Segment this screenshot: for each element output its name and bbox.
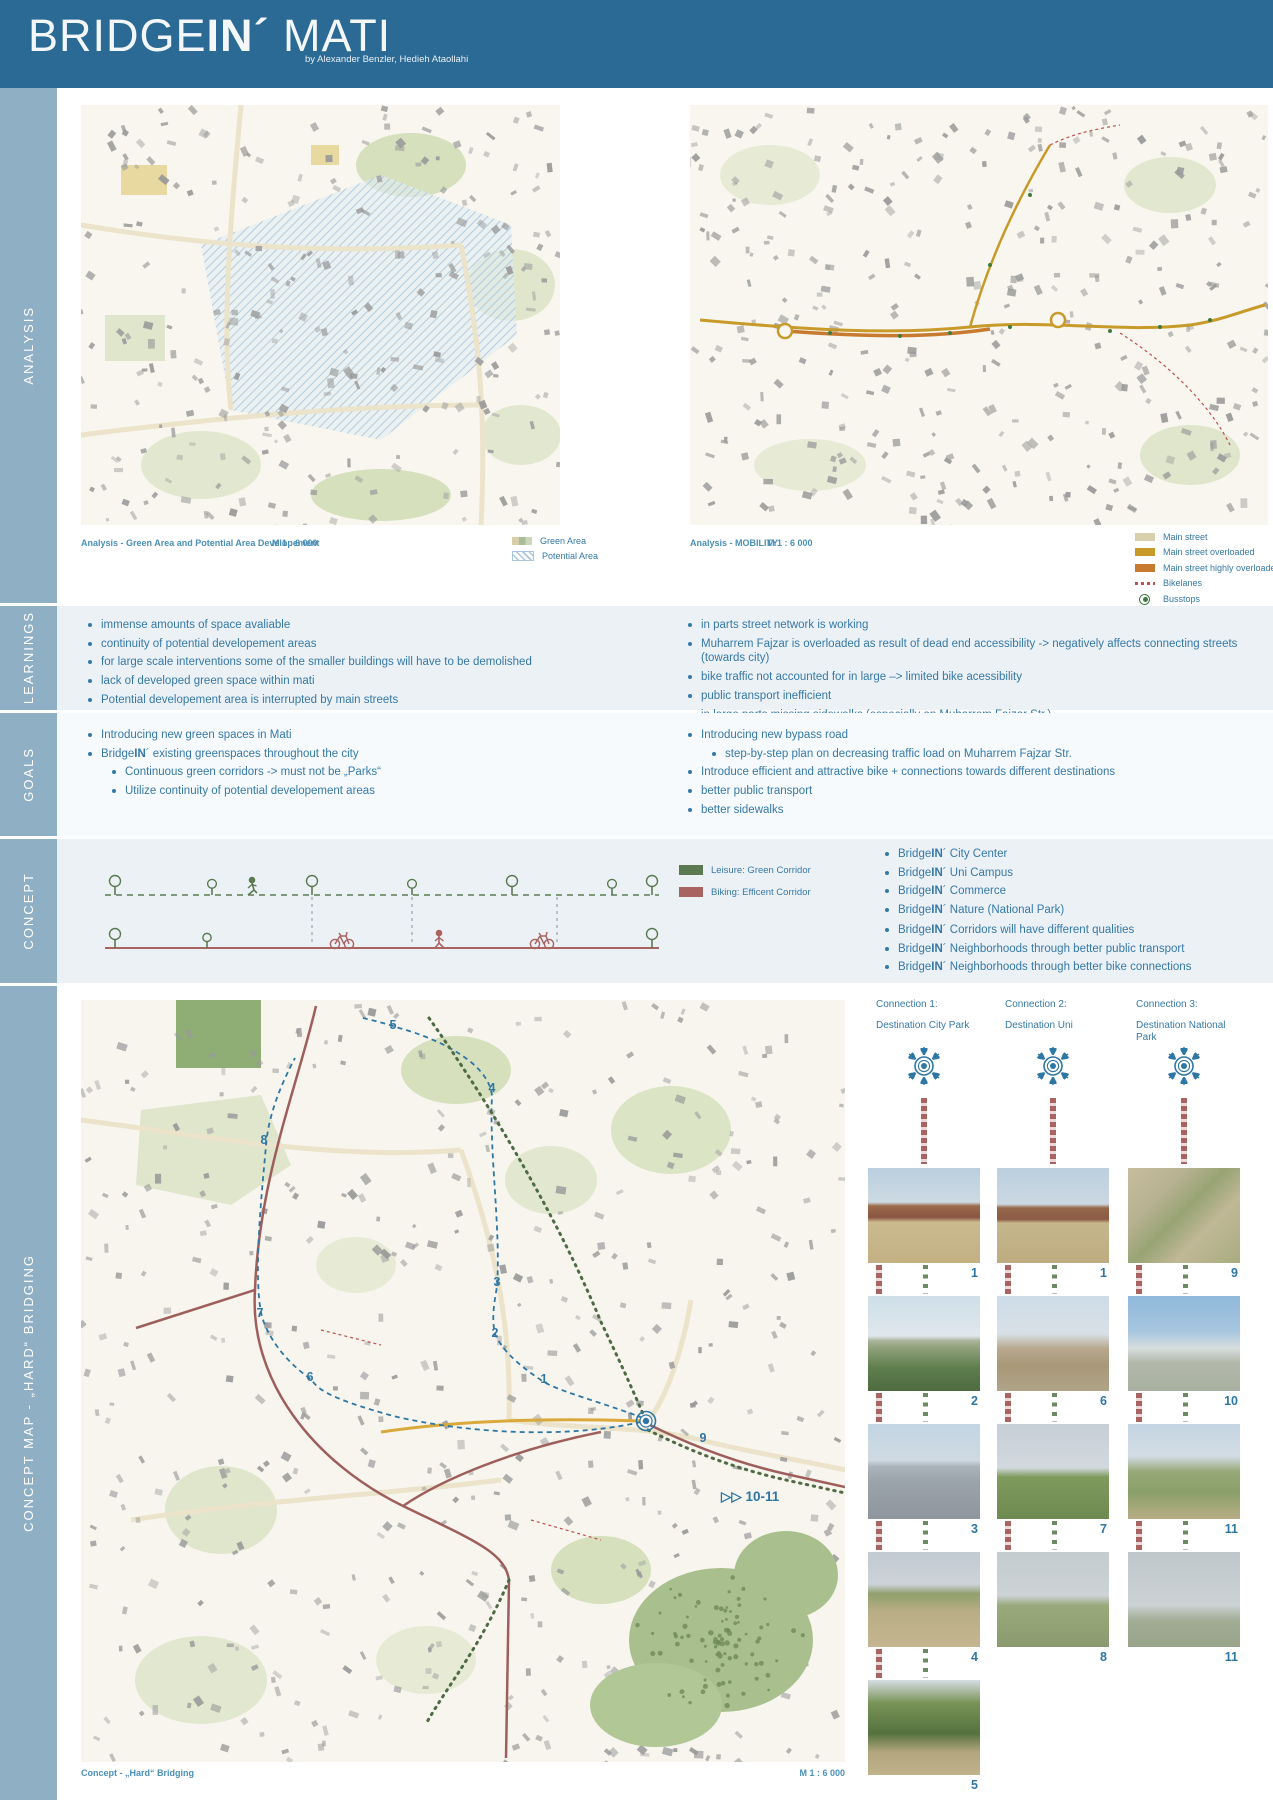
bullet-dot: [688, 623, 692, 627]
photo-number: 10: [1224, 1394, 1238, 1408]
photo-number: 11: [1225, 1650, 1238, 1664]
photo-cell: 10: [1128, 1296, 1240, 1424]
legend-item: Green Area: [512, 533, 598, 549]
bullet-text: BridgeIN´ Neighborhoods through better b…: [898, 960, 1191, 975]
bullet-dot: [112, 770, 116, 774]
photo-stack: 12345: [868, 1168, 980, 1800]
bullet-item: BridgeIN´ Nature (National Park): [885, 903, 1273, 918]
map-scale-concept: M 1 : 6 000: [757, 1768, 845, 1778]
bullet-text: Introducing new bypass road: [701, 728, 848, 743]
bullet-text: Potential developement area is interrupt…: [101, 693, 398, 708]
photo-cell: 1: [997, 1168, 1109, 1296]
site-photo: [997, 1552, 1109, 1647]
photo-gap: 8: [997, 1647, 1109, 1680]
connection-column-3: Connection 3: Destination National Park …: [1128, 986, 1240, 1800]
photo-cell: 5: [868, 1680, 980, 1800]
site-photo: [868, 1424, 980, 1519]
bullet-dot: [885, 908, 889, 912]
connection-header: Connection 1: Destination City Park: [876, 999, 969, 1032]
bullet-item: Introduce efficient and attractive bike …: [688, 765, 1263, 780]
legend-label: Leisure: Green Corridor: [711, 865, 811, 876]
photo-cell: 7: [997, 1424, 1109, 1552]
bullet-text: BridgeIN´ Nature (National Park): [898, 903, 1064, 918]
bullet-text: BridgeIN´ City Center: [898, 847, 1007, 862]
connection-subtitle: Destination City Park: [876, 1020, 969, 1032]
learnings-left-list: immense amounts of space avaliablecontin…: [88, 618, 648, 712]
bullet-text: Continuous green corridors -> must not b…: [125, 765, 381, 780]
sw-bikelane-swatch: [1135, 582, 1155, 585]
bullet-dot: [688, 694, 692, 698]
bike-corridor-connector: [876, 1265, 882, 1294]
bike-corridor-connector: [1005, 1521, 1011, 1550]
corridor-diagram: [87, 845, 677, 977]
site-photo: [1128, 1552, 1240, 1647]
bullet-dot: [885, 889, 889, 893]
bullet-text: public transport inefficient: [701, 689, 831, 704]
photo-number: 8: [1100, 1650, 1107, 1664]
bullet-item: BridgeIN´ Neighborhoods through better p…: [885, 942, 1273, 957]
bullet-item: bike traffic not accounted for in large …: [688, 670, 1263, 685]
corridor-connector: [921, 1098, 927, 1164]
sidebar-label: GOALS: [21, 747, 36, 802]
bullet-item: BridgeIN´ existing greenspaces throughou…: [88, 747, 648, 762]
photo-gap: 1: [868, 1263, 980, 1296]
bullet-dot: [885, 871, 889, 875]
map-scale-mobility: M 1 : 6 000: [767, 538, 813, 548]
connection-title: Connection 1:: [876, 999, 969, 1011]
green-corridor-connector: [923, 1649, 928, 1678]
green-area-map: [81, 105, 560, 525]
sidebar-label: CONCEPT: [21, 872, 36, 950]
poster: BRIDGEIN´ MATI by Alexander Benzler, Hed…: [0, 0, 1273, 1800]
destination-target-icon: [1164, 1046, 1204, 1086]
bike-corridor-connector: [1136, 1393, 1142, 1422]
bullet-item: BridgeIN´ City Center: [885, 847, 1273, 862]
legend-item: Bikelanes: [1135, 576, 1273, 592]
bike-corridor-connector: [1136, 1265, 1142, 1294]
bullet-text: Introducing new green spaces in Mati: [101, 728, 292, 743]
legend-label: Biking: Efficent Corridor: [711, 887, 811, 898]
connection-header: Connection 3: Destination National Park: [1136, 999, 1240, 1044]
photo-gap: 2: [868, 1391, 980, 1424]
legend-item: Main street overloaded: [1135, 545, 1273, 561]
photo-gap: 7: [997, 1519, 1109, 1552]
site-photo: [997, 1168, 1109, 1263]
site-photo: [1128, 1168, 1240, 1263]
bullet-item: step-by-step plan on decreasing traffic …: [712, 747, 1263, 762]
connection-title: Connection 3:: [1136, 999, 1240, 1011]
concept-map: [81, 1000, 845, 1762]
bullet-text: BridgeIN´ existing greenspaces throughou…: [101, 747, 359, 762]
bullet-dot: [688, 642, 692, 646]
bullet-dot: [88, 660, 92, 664]
sw-orange-swatch: [1135, 564, 1155, 572]
site-photo: [1128, 1424, 1240, 1519]
site-photo: [868, 1168, 980, 1263]
bullet-text: Utilize continuity of potential develope…: [125, 784, 375, 799]
bullet-dot: [688, 770, 692, 774]
bullet-text: bike traffic not accounted for in large …: [701, 670, 1022, 685]
bullet-dot: [688, 789, 692, 793]
corridor-connector: [1181, 1098, 1187, 1164]
bullet-item: Introducing new bypass road: [688, 728, 1263, 743]
bullet-dot: [688, 675, 692, 679]
sidebar-item-concept-map: CONCEPT MAP - „HARD“ BRIDGING: [0, 986, 57, 1800]
bullet-text: continuity of potential developement are…: [101, 637, 316, 652]
bullet-item: better public transport: [688, 784, 1263, 799]
sidebar-item-analysis: ANALYSIS: [0, 88, 57, 603]
photo-number: 9: [1231, 1266, 1238, 1280]
bullet-dot: [88, 698, 92, 702]
legend-label: Green Area: [540, 536, 586, 546]
site-photo: [997, 1296, 1109, 1391]
photo-number: 1: [971, 1266, 978, 1280]
site-photo: [868, 1552, 980, 1647]
legend-item: Busstops: [1135, 591, 1273, 607]
photo-number: 1: [1100, 1266, 1107, 1280]
bullet-item: Potential developement area is interrupt…: [88, 693, 648, 708]
photo-stack: 9101111: [1128, 1168, 1240, 1680]
bullet-dot: [885, 852, 889, 856]
byline: by Alexander Benzler, Hedieh Ataollahi: [305, 54, 468, 65]
bike-corridor-connector: [1005, 1393, 1011, 1422]
concept-map-svg: [81, 1000, 845, 1762]
photo-cell: 2: [868, 1296, 980, 1424]
header: BRIDGEIN´ MATI by Alexander Benzler, Hed…: [0, 0, 1273, 88]
bullet-item: BridgeIN´ Corridors will have different …: [885, 923, 1273, 938]
bullet-text: BridgeIN´ Neighborhoods through better p…: [898, 942, 1184, 957]
photo-gap: 11: [1128, 1647, 1240, 1680]
photo-gap: 4: [868, 1647, 980, 1680]
bullet-text: BridgeIN´ Corridors will have different …: [898, 923, 1134, 938]
site-photo: [997, 1424, 1109, 1519]
legend-item: Biking: Efficent Corridor: [679, 881, 811, 903]
sw-busstop-swatch: [1135, 593, 1155, 605]
concept-legend: Leisure: Green CorridorBiking: Efficent …: [679, 859, 811, 903]
legend-label: Main street: [1163, 532, 1208, 542]
mobility-map-svg: [690, 105, 1268, 525]
sidebar-item-goals: GOALS: [0, 713, 57, 836]
connection-title: Connection 2:: [1005, 999, 1073, 1011]
map-scale-green-area: M 1 : 6 000: [272, 538, 318, 548]
bullet-item: lack of developed green space within mat…: [88, 674, 648, 689]
green-corridor-connector: [1052, 1393, 1057, 1422]
bullet-text: better public transport: [701, 784, 812, 799]
bike-corridor-connector: [876, 1393, 882, 1422]
photo-cell: 8: [997, 1552, 1109, 1680]
green-area-legend: Green AreaPotential Area: [512, 533, 598, 564]
photo-cell: 11: [1128, 1552, 1240, 1680]
bullet-text: in parts street network is working: [701, 618, 868, 633]
photo-gap: 6: [997, 1391, 1109, 1424]
bullet-dot: [88, 733, 92, 737]
sidebar-label: CONCEPT MAP - „HARD“ BRIDGING: [21, 1254, 36, 1532]
bullet-dot: [88, 623, 92, 627]
sw-tan-swatch: [1135, 533, 1155, 541]
learnings-right-list: in parts street network is workingMuharr…: [688, 618, 1263, 726]
connection-column-2: Connection 2: Destination Uni 1678: [997, 986, 1109, 1800]
bullet-item: better sidewalks: [688, 803, 1263, 818]
goals-section: Introducing new green spaces in MatiBrid…: [57, 713, 1273, 836]
connection-column-1: Connection 1: Destination City Park 1234…: [868, 986, 980, 1800]
sw-potential-swatch: [512, 551, 534, 561]
green-corridor-connector: [923, 1265, 928, 1294]
photo-cell: 9: [1128, 1168, 1240, 1296]
connection-subtitle: Destination National Park: [1136, 1020, 1240, 1044]
photo-gap: 3: [868, 1519, 980, 1552]
legend-label: Main street highly overloaded: [1163, 563, 1273, 573]
bullet-dot: [688, 733, 692, 737]
photo-gap: 5: [868, 1775, 980, 1800]
bike-corridor-connector: [1136, 1521, 1142, 1550]
bullet-dot: [112, 789, 116, 793]
photo-cell: 1: [868, 1168, 980, 1296]
learnings-section: immense amounts of space avaliablecontin…: [57, 606, 1273, 710]
photo-cell: 4: [868, 1552, 980, 1680]
bike-corridor-connector: [876, 1521, 882, 1550]
bullet-text: step-by-step plan on decreasing traffic …: [725, 747, 1072, 762]
bullet-dot: [885, 947, 889, 951]
green-corridor-connector: [1183, 1393, 1188, 1422]
photo-number: 4: [971, 1650, 978, 1664]
bullet-item: for large scale interventions some of th…: [88, 655, 648, 670]
bullet-item: immense amounts of space avaliable: [88, 618, 648, 633]
sw-leisure-swatch: [679, 865, 703, 875]
map-caption-concept: Concept - „Hard“ Bridging: [81, 1768, 194, 1778]
concept-bullets-group1: BridgeIN´ City CenterBridgeIN´ Uni Campu…: [885, 847, 1273, 922]
corridor-diagram-svg: [87, 845, 677, 977]
site-photo: [868, 1680, 980, 1775]
destination-target-icon: [904, 1046, 944, 1086]
bullet-text: Muharrem Fajzar is overloaded as result …: [701, 637, 1263, 666]
green-corridor-connector: [1052, 1265, 1057, 1294]
goals-right-list: Introducing new bypass roadstep-by-step …: [688, 728, 1263, 822]
bike-corridor-connector: [876, 1649, 882, 1678]
green-area-map-svg: [81, 105, 560, 525]
photo-number: 7: [1100, 1522, 1107, 1536]
bullet-dot: [88, 679, 92, 683]
photo-number: 3: [971, 1522, 978, 1536]
sidebar-label: LEARNINGS: [21, 611, 36, 704]
concept-bullets-group2: BridgeIN´ Corridors will have different …: [885, 923, 1273, 979]
bullet-item: Utilize continuity of potential develope…: [112, 784, 648, 799]
bullet-dot: [885, 928, 889, 932]
photo-gap: 10: [1128, 1391, 1240, 1424]
map-caption-mobility: Analysis - MOBILITY: [690, 538, 778, 548]
bullet-text: BridgeIN´ Commerce: [898, 884, 1006, 899]
bullet-text: better sidewalks: [701, 803, 783, 818]
bullet-dot: [712, 752, 716, 756]
bullet-dot: [88, 752, 92, 756]
site-photo: [868, 1296, 980, 1391]
site-photo: [1128, 1296, 1240, 1391]
photo-cell: 11: [1128, 1424, 1240, 1552]
bike-corridor-connector: [1005, 1265, 1011, 1294]
photo-number: 2: [971, 1394, 978, 1408]
bullet-dot: [885, 965, 889, 969]
bullet-text: Introduce efficient and attractive bike …: [701, 765, 1115, 780]
bullet-dot: [88, 642, 92, 646]
green-corridor-connector: [1183, 1521, 1188, 1550]
bullet-item: Muharrem Fajzar is overloaded as result …: [688, 637, 1263, 666]
mobility-map: [690, 105, 1268, 525]
bullet-item: BridgeIN´ Commerce: [885, 884, 1273, 899]
photo-number: 5: [971, 1778, 978, 1792]
analysis-section: Analysis - Green Area and Potential Area…: [57, 88, 1273, 603]
corridor-connector: [1050, 1098, 1056, 1164]
sw-gold-swatch: [1135, 548, 1155, 556]
legend-item: Main street: [1135, 529, 1273, 545]
concept-map-section: 548732619 ▷▷ 10-11 Concept - „Hard“ Brid…: [57, 986, 1273, 1800]
photo-gap: 9: [1128, 1263, 1240, 1296]
bullet-item: public transport inefficient: [688, 689, 1263, 704]
sidebar-item-learnings: LEARNINGS: [0, 606, 57, 710]
legend-label: Main street overloaded: [1163, 547, 1255, 557]
bullet-item: BridgeIN´ Neighborhoods through better b…: [885, 960, 1273, 975]
bullet-text: for large scale interventions some of th…: [101, 655, 532, 670]
legend-label: Busstops: [1163, 594, 1200, 604]
legend-item: Leisure: Green Corridor: [679, 859, 811, 881]
legend-label: Bikelanes: [1163, 578, 1202, 588]
bullet-item: Introducing new green spaces in Mati: [88, 728, 648, 743]
sw-green-area-swatch: [512, 537, 532, 545]
concept-section: Leisure: Green CorridorBiking: Efficent …: [57, 839, 1273, 983]
photo-gap: 11: [1128, 1519, 1240, 1552]
bullet-item: in parts street network is working: [688, 618, 1263, 633]
sidebar-item-concept: CONCEPT: [0, 839, 57, 983]
green-corridor-connector: [1183, 1265, 1188, 1294]
bullet-item: Continuous green corridors -> must not b…: [112, 765, 648, 780]
sw-biking-swatch: [679, 887, 703, 897]
photo-cell: 6: [997, 1296, 1109, 1424]
bullet-text: lack of developed green space within mat…: [101, 674, 315, 689]
bullet-item: BridgeIN´ Uni Campus: [885, 866, 1273, 881]
legend-item: Potential Area: [512, 549, 598, 565]
green-corridor-connector: [923, 1521, 928, 1550]
connection-subtitle: Destination Uni: [1005, 1020, 1073, 1032]
legend-label: Potential Area: [542, 551, 598, 561]
bullet-text: immense amounts of space avaliable: [101, 618, 290, 633]
goals-left-list: Introducing new green spaces in MatiBrid…: [88, 728, 648, 803]
green-corridor-connector: [923, 1393, 928, 1422]
photo-stack: 1678: [997, 1168, 1109, 1680]
destination-target-icon: [1033, 1046, 1073, 1086]
bullet-item: continuity of potential developement are…: [88, 637, 648, 652]
connection-header: Connection 2: Destination Uni: [1005, 999, 1073, 1032]
photo-number: 6: [1100, 1394, 1107, 1408]
photo-number: 11: [1225, 1522, 1238, 1536]
photo-cell: 3: [868, 1424, 980, 1552]
photo-gap: 1: [997, 1263, 1109, 1296]
legend-item: Main street highly overloaded: [1135, 560, 1273, 576]
bullet-text: BridgeIN´ Uni Campus: [898, 866, 1013, 881]
bullet-dot: [688, 808, 692, 812]
sidebar-label: ANALYSIS: [21, 306, 36, 385]
green-corridor-connector: [1052, 1521, 1057, 1550]
